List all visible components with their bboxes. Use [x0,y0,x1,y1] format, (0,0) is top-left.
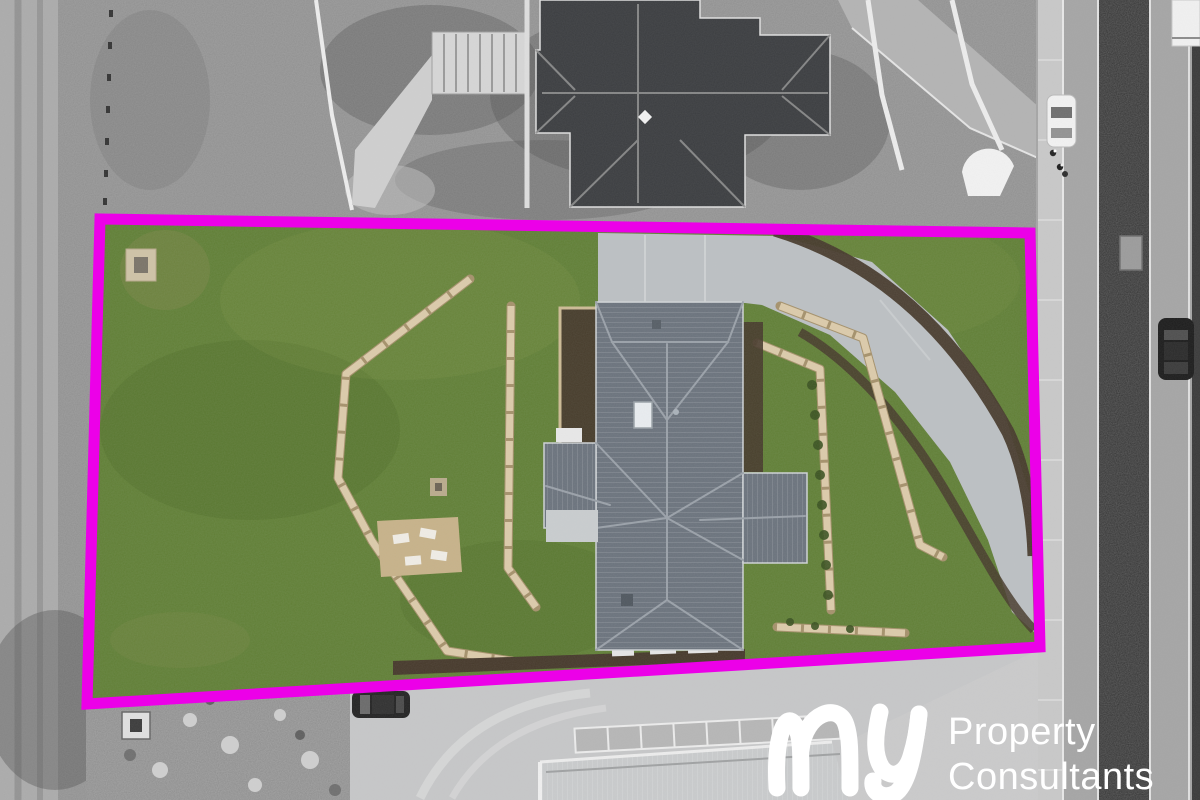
brand-name-line2: Consultants [948,756,1154,798]
brand-name-line1: Property [948,711,1096,753]
photo-grain [0,0,1200,800]
aerial-photo-canvas: Property Consultants [0,0,1200,800]
aerial-photo: Property Consultants [0,0,1200,800]
